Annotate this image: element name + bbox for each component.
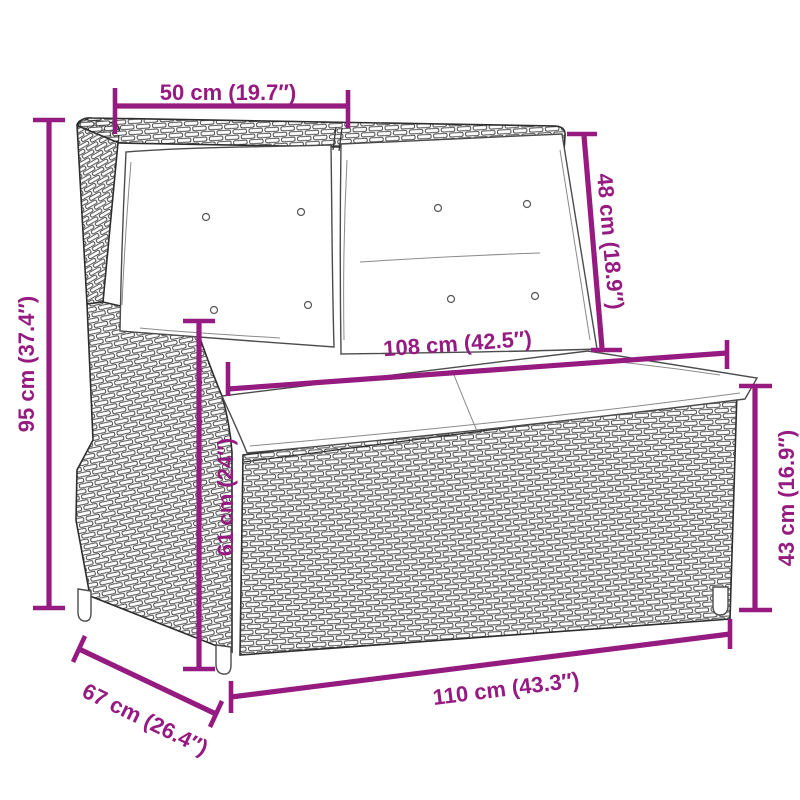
- cushion-button: [203, 214, 210, 221]
- dimension-label-arm-height: 61 cm (24″): [213, 438, 238, 556]
- dimension-seat-height: 43 cm (16.9″): [739, 386, 799, 610]
- dimension-diagram-page: 50 cm (19.7″) 95 cm (37.4″) 48 cm (18.9″…: [0, 0, 800, 800]
- dimension-total-height: 95 cm (37.4″): [14, 120, 65, 608]
- dimension-label-depth: 67 cm (26.4″): [78, 678, 212, 760]
- cushion-button: [211, 307, 218, 314]
- cushion-button: [435, 205, 442, 212]
- bench-leg-front-left: [216, 645, 231, 674]
- dimension-label-top-width: 50 cm (19.7″): [160, 80, 297, 105]
- bench-leg-front-right: [713, 587, 728, 615]
- dimension-label-seat-height: 43 cm (16.9″): [774, 430, 799, 567]
- dimension-label-total-width: 110 cm (43.3″): [431, 667, 580, 710]
- cushion-button: [532, 293, 539, 300]
- cushion-button: [298, 209, 305, 216]
- bench-leg-left: [78, 589, 91, 621]
- bench-dimension-diagram: 50 cm (19.7″) 95 cm (37.4″) 48 cm (18.9″…: [0, 0, 800, 800]
- cushion-button: [524, 201, 531, 208]
- back-cushion-left: [120, 145, 334, 347]
- bench-back-left-post: [77, 120, 119, 304]
- dimension-label-total-height: 95 cm (37.4″): [14, 296, 39, 433]
- bench-illustration: [76, 118, 757, 674]
- cushion-button: [305, 302, 312, 309]
- back-cushion-right: [340, 134, 597, 354]
- cushion-button: [448, 296, 455, 303]
- bench-armrest-and-side-panel: [76, 302, 232, 652]
